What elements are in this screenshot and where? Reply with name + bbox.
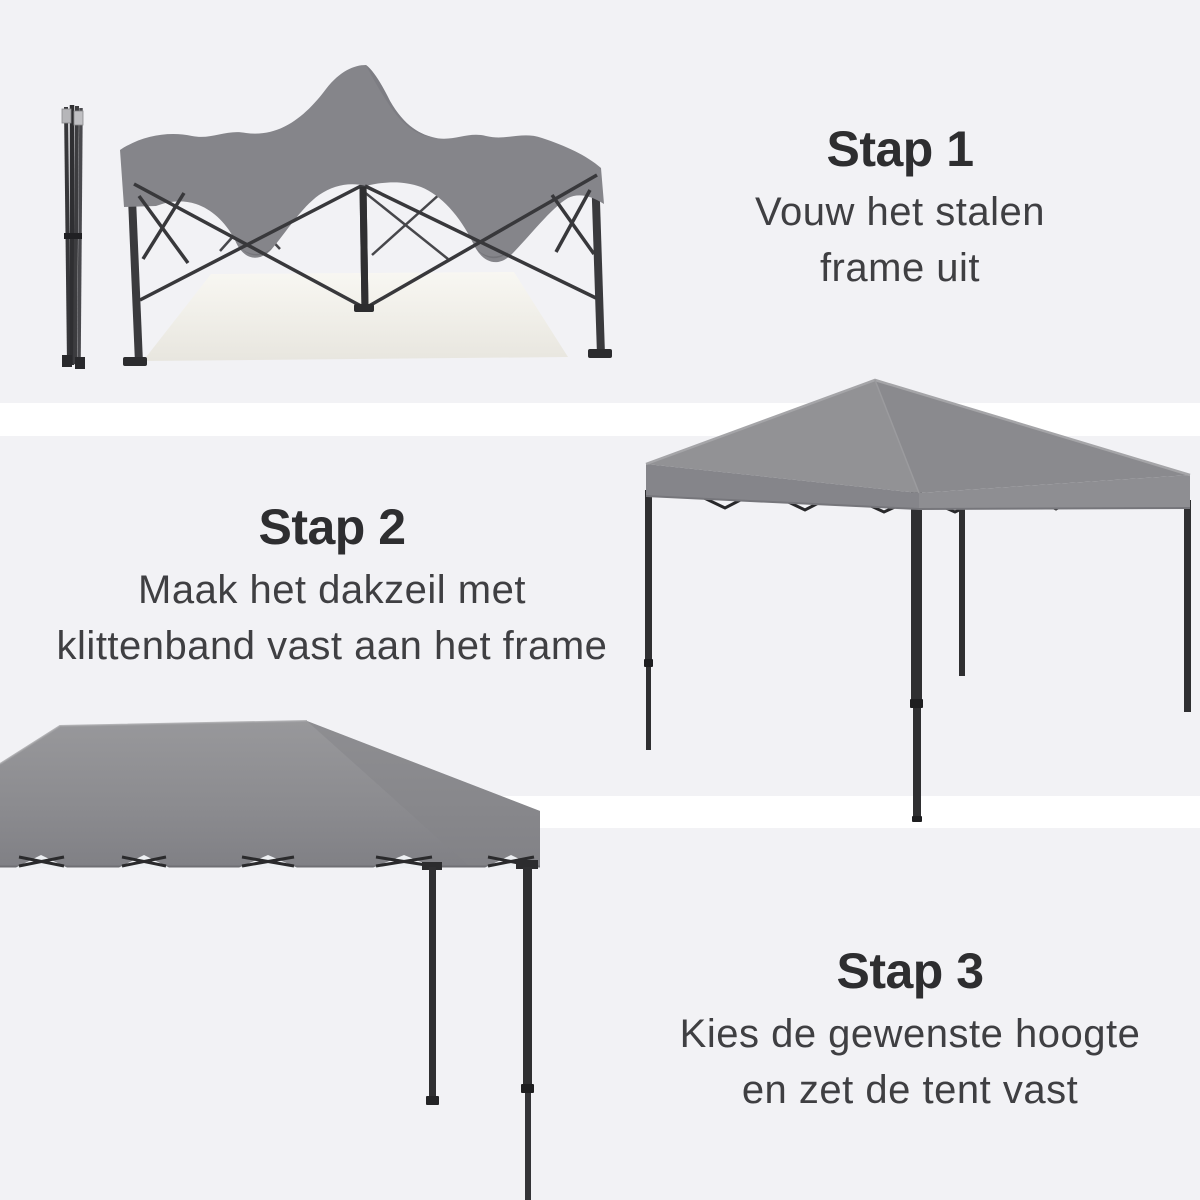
folded-frame-bundle: [62, 105, 85, 369]
step3-title: Stap 3: [640, 942, 1180, 1000]
step1-text-block: Stap 1 Vouw het stalen frame uit: [640, 120, 1160, 296]
tent-canopy: [646, 380, 1190, 509]
step2-text-block: Stap 2 Maak het dakzeil met klittenband …: [8, 498, 656, 674]
step2-line-2: klittenband vast aan het frame: [8, 618, 656, 674]
step1-frame-illustration: [20, 45, 620, 380]
step1-title: Stap 1: [640, 120, 1160, 178]
step3-line-2: en zet de tent vast: [640, 1062, 1180, 1118]
adjustable-legs: [422, 860, 538, 1200]
step3-canopy-closeup-illustration: [0, 690, 560, 1200]
step3-text-block: Stap 3 Kies de gewenste hoogte en zet de…: [640, 942, 1180, 1118]
step1-line-1: Vouw het stalen: [640, 184, 1160, 240]
tent-legs: [645, 488, 1191, 822]
step2-tent-illustration: [630, 370, 1200, 830]
step3-line-1: Kies de gewenste hoogte: [640, 1006, 1180, 1062]
step2-line-1: Maak het dakzeil met: [8, 562, 656, 618]
instruction-sheet: Stap 1 Vouw het stalen frame uit Stap 2 …: [0, 0, 1200, 1200]
step2-title: Stap 2: [8, 498, 656, 556]
floor-platform: [143, 272, 568, 361]
step1-line-2: frame uit: [640, 240, 1160, 296]
